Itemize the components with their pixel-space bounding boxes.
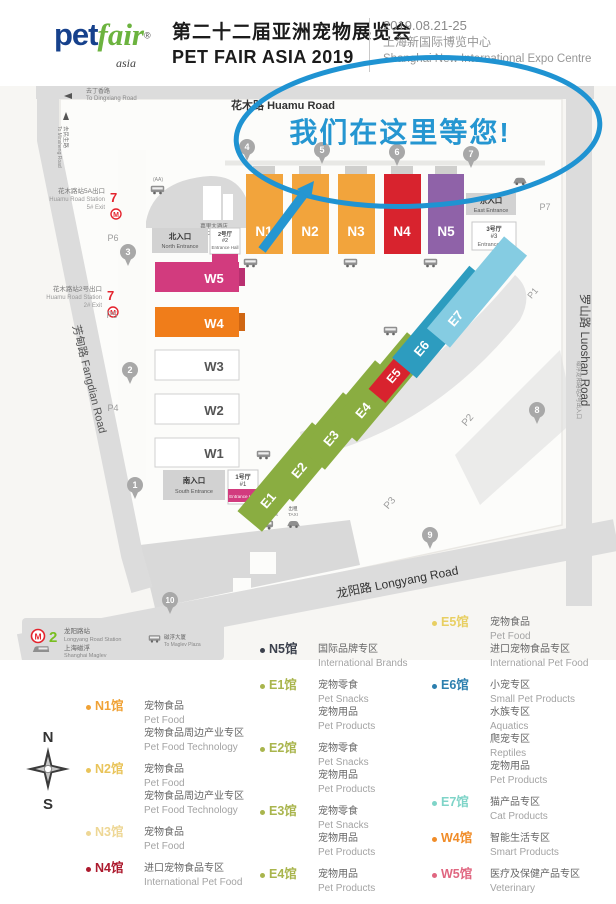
compass: N S	[20, 730, 76, 813]
legend-item: W4馆智能生活专区Smart Products	[432, 832, 608, 859]
svg-text:7: 7	[468, 149, 473, 159]
legend-line-cn: 宠物用品	[318, 706, 436, 720]
hall3-cn: 3号厅	[486, 225, 501, 233]
hall2-cn: 2号厅	[218, 230, 233, 238]
legend-item: E6馆小宠专区Small Pet Products水族专区Aquatics爬宠专…	[432, 679, 608, 787]
svg-text:去民生路: 去民生路	[62, 126, 70, 149]
legend-line-en: International Pet Food	[144, 876, 262, 890]
legend-hall-label: W5馆	[441, 868, 472, 882]
svg-text:W2: W2	[204, 403, 224, 418]
svg-text:W5: W5	[204, 271, 224, 286]
svg-text:N2: N2	[301, 224, 318, 239]
legend-bullet-icon	[86, 867, 91, 872]
legend-line-cn: 医疗及保健产品专区	[490, 868, 608, 882]
parking-p4: P4	[107, 403, 118, 413]
road-label-maglev-exit: 磁浮龙阳路站2号出入口	[575, 361, 583, 419]
svg-text:4: 4	[244, 142, 249, 152]
legend-hall-label: E4馆	[269, 868, 297, 882]
legend-line-cn: 爬宠专区	[490, 733, 608, 747]
legend-line-en: Small Pet Products	[490, 693, 608, 707]
to-plaza-cn: 磁浮大厦	[164, 633, 187, 641]
svg-text:Huamu Road Station: Huamu Road Station	[49, 197, 105, 203]
legend-hall-label: E2馆	[269, 742, 297, 756]
legend-bullet-icon	[86, 705, 91, 710]
legend-item: N3馆宠物食品Pet Food	[86, 826, 262, 853]
legend-line-cn: 猫产品专区	[490, 796, 608, 810]
legend-line-en: Pet Snacks	[318, 756, 436, 770]
legend-bullet-icon	[86, 768, 91, 773]
legend-item: N2馆宠物食品Pet Food宠物食品周边产业专区Pet Food Techno…	[86, 763, 262, 817]
legend-bullet-icon	[260, 810, 265, 815]
building-block	[250, 552, 276, 574]
legend-line-cn: 进口宠物食品专区	[490, 643, 608, 657]
south-entrance-cn: 南入口	[183, 475, 206, 485]
hall2-no: #2	[222, 238, 228, 244]
legend-hall-label: E1馆	[269, 679, 297, 693]
legend-line-en: Reptiles	[490, 747, 608, 761]
svg-text:花木路站2号出口: 花木路站2号出口	[53, 284, 102, 293]
svg-text:2# Exit: 2# Exit	[84, 303, 103, 309]
legend-hall-label: N2馆	[95, 763, 123, 777]
legend-item: N4馆进口宠物食品专区International Pet Food	[86, 862, 262, 889]
legend-col1: N1馆宠物食品Pet Food宠物食品周边产业专区Pet Food Techno…	[86, 700, 262, 898]
hall2-en: Entrance Hall	[211, 245, 238, 250]
longyang-station-cn: 龙阳路站	[64, 626, 91, 635]
to-plaza-en: To Maglev Plaza	[164, 642, 201, 648]
legend-bullet-icon	[260, 684, 265, 689]
svg-text:5# Exit: 5# Exit	[87, 205, 106, 211]
legend-bullet-icon	[260, 873, 265, 878]
parking-p5: P5	[106, 310, 117, 320]
venue-map: 花木路 Huamu Road 去丁香路 To Dingxiang Road 去民…	[0, 0, 616, 660]
hall-n5	[428, 174, 464, 254]
longyang-station-en: Longyang Road Station	[64, 637, 122, 643]
line2-number: 2	[49, 629, 57, 646]
legend-line-cn: 水族专区	[490, 706, 608, 720]
hall1-cn: 1号厅	[235, 473, 250, 481]
svg-text:7: 7	[107, 288, 114, 303]
hall1-no: #1	[240, 482, 247, 488]
legend-item: E7馆猫产品专区Cat Products	[432, 796, 608, 823]
legend-line-en: International Pet Food	[490, 657, 608, 671]
maglev-train-icon	[33, 646, 49, 652]
compass-south-label: S	[20, 797, 76, 813]
metro2-station: M 2 龙阳路站 Longyang Road Station 上海磁浮 Shan…	[22, 618, 224, 660]
north-entrance-cn: 北入口	[169, 231, 192, 241]
legend-line-en: Pet Products	[318, 783, 436, 797]
legend-line-en: Pet Products	[318, 720, 436, 734]
legend-line-cn: 宠物食品周边产业专区	[144, 790, 262, 804]
legend-item: E3馆宠物零食Pet Snacks宠物用品Pet Products	[260, 805, 436, 859]
compass-rose-icon	[25, 746, 71, 792]
legend-bullet-icon	[432, 801, 437, 806]
hall-w3	[155, 350, 239, 380]
legend-hall-label: E5馆	[441, 616, 469, 630]
legend-bullet-icon	[260, 648, 265, 653]
legend-bullet-icon	[432, 684, 437, 689]
svg-text:W3: W3	[204, 359, 224, 374]
legend-line-cn: 进口宠物食品专区	[144, 862, 262, 876]
legend-line-cn: 宠物零食	[318, 805, 436, 819]
legend-line-cn: 宠物食品	[490, 616, 608, 630]
legend-line-en: Pet Food	[144, 840, 262, 854]
legend-bullet-icon	[432, 837, 437, 842]
legend-line-en: Aquatics	[490, 720, 608, 734]
parking-p6: P6	[107, 233, 118, 243]
n-halls: N1 N2 N3 N4 N5	[246, 166, 464, 254]
legend-line-cn: 国际品牌专区	[318, 643, 436, 657]
legend-item: E4馆宠物用品Pet Products	[260, 868, 436, 895]
metro-logo-icon: M	[111, 209, 121, 219]
svg-text:花木路站5A出口: 花木路站5A出口	[58, 186, 105, 195]
legend-item: W5馆医疗及保健产品专区Veterinary	[432, 868, 608, 895]
legend-hall-label: W4馆	[441, 832, 472, 846]
legend-line-en: International Brands	[318, 657, 436, 671]
legend-line-en: Pet Food	[144, 714, 262, 728]
legend-hall-label: N3馆	[95, 826, 123, 840]
legend-hall-label: N4馆	[95, 862, 123, 876]
hall2-connector	[212, 254, 238, 262]
legend-line-en: Pet Food Technology	[144, 804, 262, 818]
legend-line-en: Cat Products	[490, 810, 608, 824]
svg-text:8: 8	[534, 405, 539, 415]
legend-line-en: Pet Food	[144, 777, 262, 791]
west-service-road	[118, 150, 146, 480]
legend-line-cn: 宠物零食	[318, 679, 436, 693]
svg-text:1: 1	[132, 480, 137, 490]
parking-note-label: (AA)	[153, 177, 163, 183]
svg-text:Huamu Road Station: Huamu Road Station	[46, 295, 102, 301]
hall-n4	[384, 174, 421, 254]
legend-bullet-icon	[260, 747, 265, 752]
svg-text:3: 3	[125, 247, 130, 257]
svg-text:6: 6	[394, 147, 399, 157]
legend-line-cn: 宠物用品	[490, 760, 608, 774]
legend-bullet-icon	[86, 831, 91, 836]
north-entrance-en: North Entrance	[162, 244, 199, 250]
svg-text:M: M	[34, 632, 41, 642]
hall-n3	[338, 174, 375, 254]
legend-hall-label: E6馆	[441, 679, 469, 693]
maglev-cn: 上海磁浮	[64, 643, 91, 652]
svg-text:W1: W1	[204, 446, 224, 461]
legend-bullet-icon	[432, 873, 437, 878]
legend-bullet-icon	[432, 621, 437, 626]
legend-item: N5馆国际品牌专区International Brands	[260, 643, 436, 670]
svg-text:N3: N3	[347, 224, 365, 239]
callout-banner-text: 我们在这里等您!	[289, 116, 510, 148]
legend-hall-label: N1馆	[95, 700, 123, 714]
hall-w2	[155, 394, 239, 424]
legend-item: N1馆宠物食品Pet Food宠物食品周边产业专区Pet Food Techno…	[86, 700, 262, 754]
south-entrance-en: South Entrance	[175, 489, 213, 495]
legend-hall-label: N5馆	[269, 643, 297, 657]
legend-line-cn: 宠物食品	[144, 700, 262, 714]
legend-line-en: Pet Food	[490, 630, 608, 644]
east-entrance-en: East Entrance	[474, 208, 509, 214]
legend-line-cn: 宠物食品	[144, 826, 262, 840]
svg-text:To Dingxiang Road: To Dingxiang Road	[86, 96, 137, 102]
svg-text:M: M	[113, 212, 119, 219]
legend-hall-label: E7馆	[441, 796, 469, 810]
legend-line-cn: 宠物食品	[144, 763, 262, 777]
legend-line-en: Pet Products	[490, 774, 608, 788]
legend-item: E1馆宠物零食Pet Snacks宠物用品Pet Products	[260, 679, 436, 733]
svg-text:9: 9	[427, 530, 432, 540]
legend-hall-label: E3馆	[269, 805, 297, 819]
legend-line-en: Smart Products	[490, 846, 608, 860]
legend-line-cn: 宠物用品	[318, 769, 436, 783]
legend-line-cn: 宠物零食	[318, 742, 436, 756]
maglev-en: Shanghai Maglev	[64, 653, 107, 659]
legend-line-cn: 宠物用品	[318, 832, 436, 846]
legend-line-en: Pet Snacks	[318, 819, 436, 833]
legend-col3: E5馆宠物食品Pet Food进口宠物食品专区International Pet…	[432, 616, 608, 904]
legend-line-cn: 智能生活专区	[490, 832, 608, 846]
hall-w5	[155, 262, 239, 292]
svg-text:去丁香路: 去丁香路	[86, 87, 110, 95]
legend-line-cn: 宠物食品周边产业专区	[144, 727, 262, 741]
svg-text:2: 2	[127, 365, 132, 375]
hall-w1	[155, 438, 239, 467]
svg-text:7: 7	[110, 190, 117, 205]
legend-line-en: Pet Products	[318, 846, 436, 860]
legend-item: E5馆宠物食品Pet Food进口宠物食品专区International Pet…	[432, 616, 608, 670]
metro-logo-icon: M	[32, 630, 45, 643]
compass-north-label: N	[20, 730, 76, 746]
svg-text:10: 10	[166, 596, 175, 605]
legend-item: E2馆宠物零食Pet Snacks宠物用品Pet Products	[260, 742, 436, 796]
hall3-no: #3	[491, 234, 498, 240]
legend-col2: N5馆国际品牌专区International BrandsE1馆宠物零食Pet …	[260, 643, 436, 904]
svg-text:W4: W4	[204, 316, 224, 331]
svg-text:N5: N5	[437, 224, 455, 239]
legend-line-en: Pet Food Technology	[144, 741, 262, 755]
svg-text:N4: N4	[393, 224, 411, 239]
legend-line-en: Pet Snacks	[318, 693, 436, 707]
svg-text:TAXI: TAXI	[288, 512, 298, 517]
parking-p7: P7	[539, 202, 550, 212]
legend-line-cn: 小宠专区	[490, 679, 608, 693]
svg-text:To Minsheng Road: To Minsheng Road	[56, 126, 62, 168]
svg-text:出租: 出租	[288, 505, 298, 512]
road-label-huamu: 花木路 Huamu Road	[231, 98, 335, 112]
hall-w4	[155, 307, 239, 337]
south-entrance-box	[163, 470, 225, 500]
legend-line-cn: 宠物用品	[318, 868, 436, 882]
